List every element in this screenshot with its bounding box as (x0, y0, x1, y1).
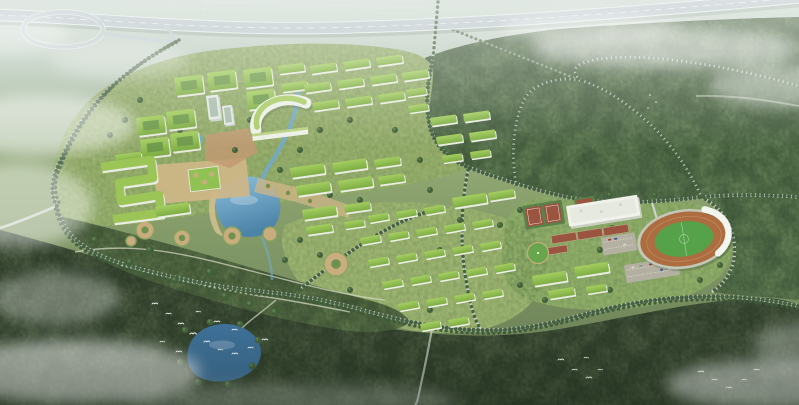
rendering-canvas: Aerial architectural rendering (0, 0, 799, 405)
green-pavilion (188, 166, 220, 191)
tree (652, 192, 658, 198)
tree (427, 187, 433, 193)
tree (607, 287, 613, 293)
tree (271, 308, 279, 316)
tree (126, 258, 134, 266)
tree (517, 207, 523, 213)
tree (597, 247, 603, 253)
tree (282, 257, 288, 263)
tree (607, 192, 613, 198)
tree (417, 157, 423, 163)
tree (297, 237, 303, 243)
planter (306, 197, 314, 205)
tree (277, 167, 283, 173)
tree (146, 246, 154, 254)
tree (317, 252, 323, 258)
atmospheric-haze (0, 0, 799, 150)
garden-circle (263, 227, 277, 241)
planter (264, 182, 272, 190)
tree (542, 297, 548, 303)
tree (207, 319, 214, 326)
tree (457, 217, 463, 223)
lawn-circle-center (537, 252, 539, 254)
tree (246, 300, 254, 308)
tree (221, 292, 229, 300)
bottom-vignette (0, 330, 799, 405)
campus-masterplan-rendering: Aerial architectural rendering (0, 0, 799, 405)
tree (517, 282, 523, 288)
tree (171, 276, 179, 284)
tree (717, 262, 723, 268)
tree (697, 277, 703, 283)
tree (206, 268, 214, 276)
tree (357, 197, 363, 203)
tree (237, 321, 244, 328)
planter (284, 189, 292, 197)
garden-circle (126, 236, 136, 246)
tree (497, 222, 503, 228)
tree (347, 287, 353, 293)
tree (91, 236, 99, 244)
